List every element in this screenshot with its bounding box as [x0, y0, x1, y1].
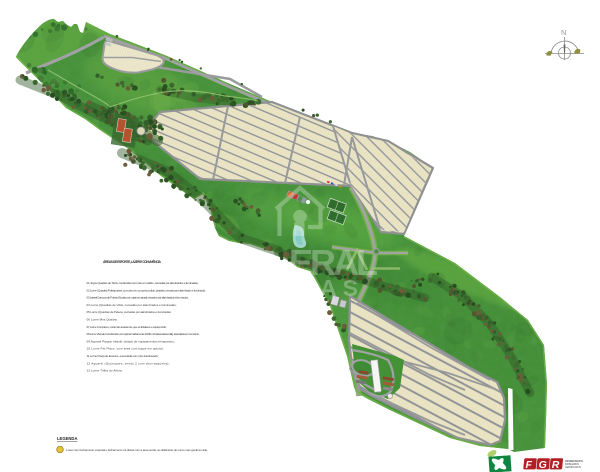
svg-text:R: R [552, 459, 560, 471]
svg-text:06 Lorne Mini Quadra;: 06 Lorne Mini Quadra; [87, 318, 118, 322]
svg-text:08 Lorne Vivia de Convivência,: 08 Lorne Vivia de Convivência, com aprox… [87, 332, 200, 336]
svg-text:ÁREAS DE ESPORTE, LAZER E CONV: ÁREAS DE ESPORTE, LAZER E CONVIVÊNCIA [103, 259, 162, 264]
svg-text:13 Lorne Trilha do Atleta.: 13 Lorne Trilha do Atleta. [87, 369, 123, 373]
svg-text:10 Lorne Pet Place, com área c: 10 Lorne Pet Place, com área com jogos e… [87, 347, 164, 351]
svg-text:07 Lorne Complexo, contendo ac: 07 Lorne Complexo, contendo academia, qu… [87, 325, 167, 329]
svg-text:01 Jogos Quadras de Tênis, con: 01 Jogos Quadras de Tênis, construídas c… [87, 281, 199, 285]
svg-text:F: F [526, 459, 533, 471]
svg-text:AS: AS [320, 275, 364, 301]
svg-text:09 Aquarel Parque Infantil, do: 09 Aquarel Parque Infantil, dotado de eq… [87, 339, 175, 343]
svg-text:02 Lorne (Quadra) Poliesportiv: 02 Lorne (Quadra) Poliesportiva, com pis… [87, 288, 206, 292]
svg-text:CERTIFICADOS: CERTIFICADOS [565, 466, 581, 469]
svg-text:05 Lorne (Quadras de Peteca, c: 05 Lorne (Quadras de Peteca, cercadas po… [87, 310, 172, 314]
svg-text:11 Lorne Praça de Eventos, exe: 11 Lorne Praça de Eventos, executada com… [87, 354, 159, 358]
svg-text:04 Lorne (Quadras de Vôlei, ce: 04 Lorne (Quadras de Vôlei, cercadas por… [87, 303, 177, 307]
svg-text:03 Lateral Campos de Futebol S: 03 Lateral Campos de Futebol Society, co… [87, 296, 189, 300]
svg-text:N: N [561, 28, 566, 37]
svg-text:LEGENDA: LEGENDA [57, 436, 77, 441]
svg-text:G: G [539, 459, 547, 471]
svg-text:12 Aquarel (Quiosques, sendo 2: 12 Aquarel (Quiosques, sendo 2 com churr… [87, 361, 170, 365]
svg-text:Lotes com fechamento especial: Lotes com fechamento especial e fechamen… [66, 448, 208, 452]
